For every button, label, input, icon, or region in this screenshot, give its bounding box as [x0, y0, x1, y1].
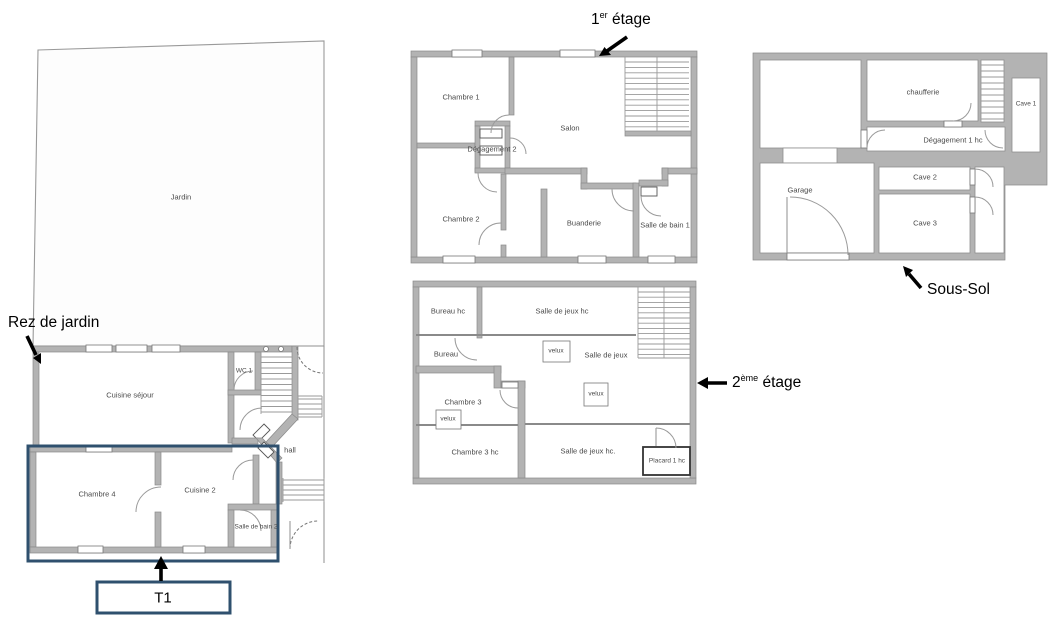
- room-label-hall: hall: [284, 446, 296, 455]
- room-label-salle-de-bain2: Salle de bain 2: [234, 524, 277, 531]
- staircase-ground: [261, 352, 322, 417]
- room-label-cuisine-sejour: Cuisine séjour: [106, 391, 154, 400]
- outside-stairs: [283, 478, 324, 502]
- room-label-garage: Garage: [787, 186, 812, 195]
- label-second-floor: 2ème étage: [732, 373, 801, 392]
- room-label-salle-de-jeux: Salle de jeux: [585, 351, 628, 360]
- room-label-buanderie: Buanderie: [567, 219, 601, 228]
- room-label-salon: Salon: [560, 124, 579, 133]
- room-label-chambre3-hc: Chambre 3 hc: [451, 448, 498, 457]
- label-t1: T1: [154, 590, 172, 607]
- room-label-placard1-hc: Placard 1 hc: [649, 458, 685, 465]
- room-label-bureau-hc: Bureau hc: [431, 307, 465, 316]
- room-label-salle-de-bain1: Salle de bain 1: [640, 221, 690, 230]
- room-label-chambre1: Chambre 1: [442, 93, 479, 102]
- entry-door-arc: [297, 347, 323, 373]
- room-label-jardin: Jardin: [171, 193, 191, 202]
- room-label-salle-de-jeux-hc-top: Salle de jeux hc: [536, 307, 589, 316]
- floor-plans-page: Jardin Cuisine séjour WC 1 hall Chambre …: [0, 0, 1054, 635]
- room-label-cave3: Cave 3: [913, 219, 937, 228]
- room-label-chambre4: Chambre 4: [78, 490, 115, 499]
- floor-plan-drawing: [0, 0, 1054, 635]
- room-label-chambre3: Chambre 3: [444, 398, 481, 407]
- room-label-velux2: velux: [588, 391, 603, 398]
- label-basement: Sous-Sol: [927, 281, 990, 299]
- room-label-degagement2: Dégagement 2: [467, 145, 516, 154]
- room-label-chaufferie: chaufferie: [907, 88, 940, 97]
- second-floor-arrow: [697, 377, 727, 389]
- staircase-first-floor: [625, 57, 689, 131]
- room-label-degagement1-hc: Dégagement 1 hc: [923, 136, 982, 145]
- room-label-cave1: Cave 1: [1016, 101, 1037, 108]
- room-label-bureau: Bureau: [434, 350, 458, 359]
- room-label-salle-de-jeux-hc-bottom: Salle de jeux hc.: [560, 447, 615, 456]
- label-first-floor: 1er étage: [591, 10, 651, 29]
- basement-arrow: [903, 266, 921, 288]
- staircase-second-floor: [638, 287, 690, 358]
- label-rez-de-jardin: Rez de jardin: [8, 314, 99, 332]
- room-label-wc1: WC 1: [236, 368, 252, 375]
- room-label-velux1: velux: [548, 348, 563, 355]
- room-label-cave2: Cave 2: [913, 173, 937, 182]
- room-label-velux3: velux: [440, 416, 455, 423]
- room-label-cuisine2: Cuisine 2: [184, 486, 215, 495]
- basement-svg: [753, 53, 1047, 288]
- room-label-chambre2: Chambre 2: [442, 215, 479, 224]
- t1-highlight-rect: [28, 446, 278, 561]
